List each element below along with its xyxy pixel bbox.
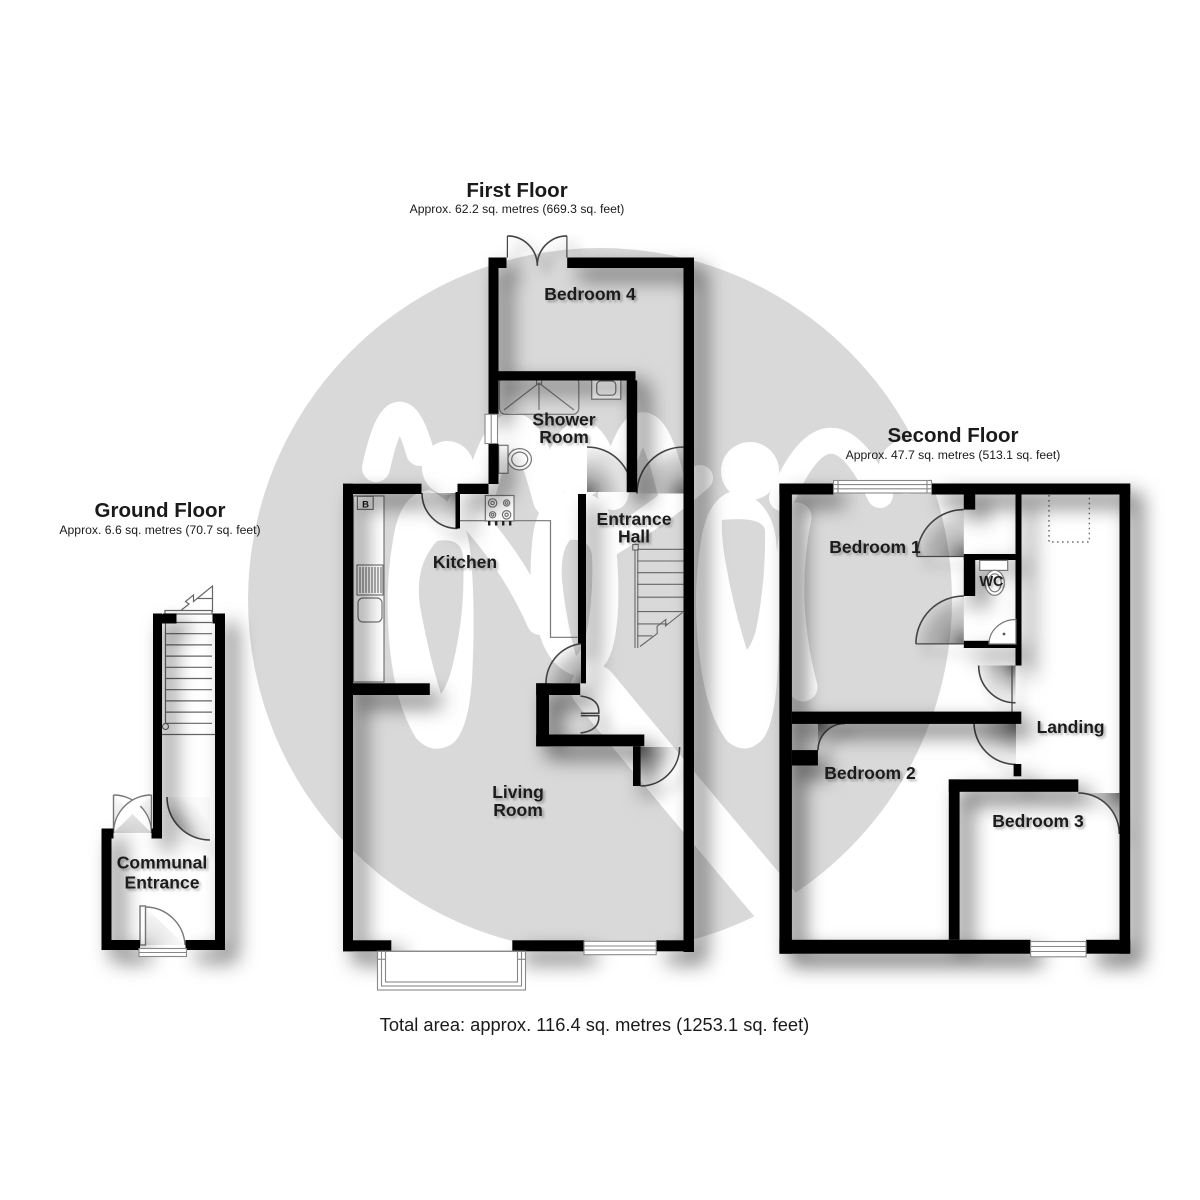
svg-text:Kitchen: Kitchen: [433, 552, 497, 572]
svg-text:Total area: approx. 116.4 sq.: Total area: approx. 116.4 sq. metres (12…: [380, 1014, 810, 1035]
svg-text:Living: Living: [492, 782, 544, 802]
svg-text:Approx. 62.2 sq. metres (669.3: Approx. 62.2 sq. metres (669.3 sq. feet): [410, 202, 625, 216]
svg-text:First Floor: First Floor: [466, 179, 567, 202]
svg-text:Entrance: Entrance: [125, 873, 200, 893]
svg-text:Approx. 47.7 sq. metres (513.1: Approx. 47.7 sq. metres (513.1 sq. feet): [846, 448, 1061, 462]
svg-text:Bedroom 1: Bedroom 1: [829, 537, 921, 557]
svg-text:Bedroom 3: Bedroom 3: [992, 811, 1084, 831]
svg-text:Bedroom 4: Bedroom 4: [544, 284, 636, 304]
svg-text:Room: Room: [539, 427, 589, 447]
svg-text:Landing: Landing: [1037, 717, 1105, 737]
svg-text:Room: Room: [493, 800, 543, 820]
svg-text:Communal: Communal: [117, 853, 207, 873]
svg-text:Ground Floor: Ground Floor: [95, 499, 226, 522]
svg-text:Approx. 6.6 sq. metres (70.7 s: Approx. 6.6 sq. metres (70.7 sq. feet): [59, 523, 260, 537]
svg-text:Second Floor: Second Floor: [888, 424, 1019, 447]
svg-text:Bedroom 2: Bedroom 2: [824, 763, 916, 783]
svg-text:Hall: Hall: [618, 527, 650, 547]
svg-text:WC: WC: [979, 574, 1004, 590]
svg-text:B: B: [362, 500, 369, 511]
